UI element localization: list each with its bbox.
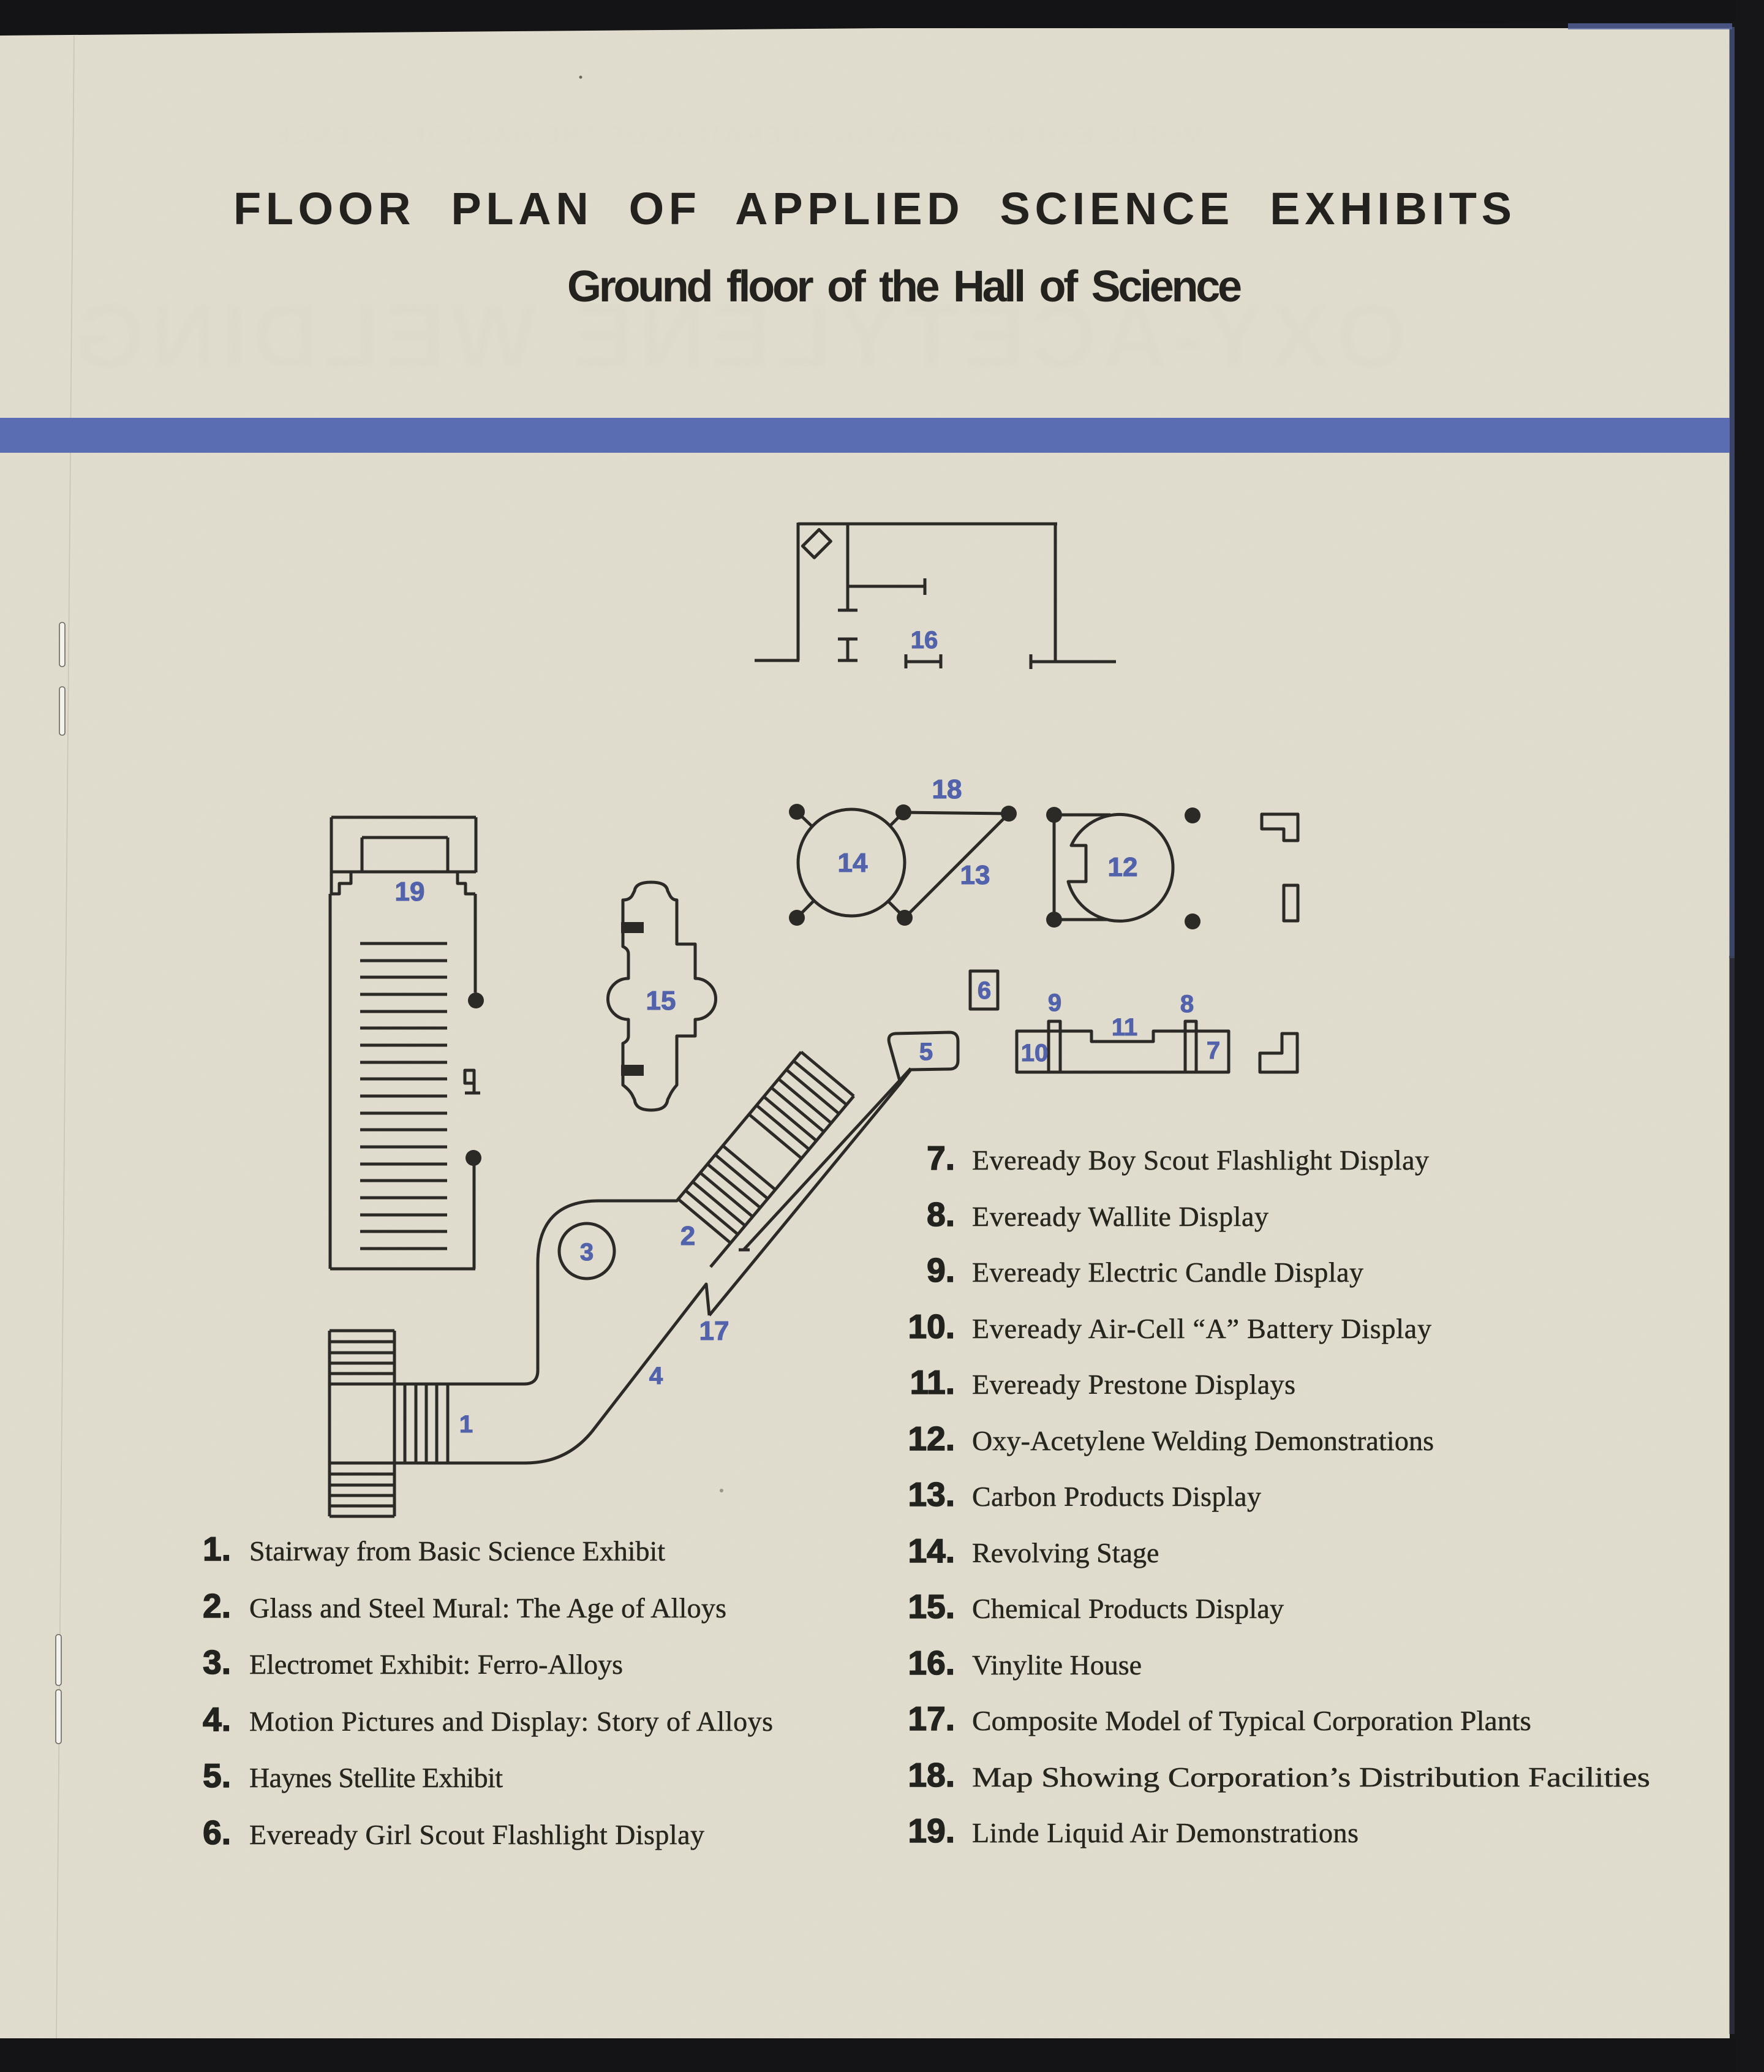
svg-text:MODEL EXHIBIT SHOWING OPERATIO: MODEL EXHIBIT SHOWING OPERATION OF THE H… <box>272 121 1204 149</box>
svg-text:9.: 9. <box>927 1251 955 1289</box>
svg-text:7: 7 <box>1207 1037 1220 1064</box>
svg-text:9: 9 <box>1048 989 1061 1016</box>
svg-text:6: 6 <box>978 977 991 1004</box>
svg-text:13: 13 <box>960 860 990 890</box>
svg-text:17: 17 <box>699 1316 729 1346</box>
svg-text:Revolving Stage: Revolving Stage <box>972 1537 1159 1568</box>
svg-text:11: 11 <box>1112 1014 1137 1041</box>
svg-text:1: 1 <box>459 1411 473 1438</box>
svg-text:7.: 7. <box>927 1139 955 1177</box>
svg-text:19: 19 <box>395 877 425 907</box>
svg-text:11.: 11. <box>910 1363 955 1401</box>
svg-text:12: 12 <box>1108 852 1138 882</box>
svg-text:Electromet Exhibit: Ferro-Allo: Electromet Exhibit: Ferro-Alloys <box>249 1649 623 1680</box>
svg-text:Map Showing Corporation’s Dist: Map Showing Corporation’s Distribution F… <box>972 1761 1650 1793</box>
svg-text:Chemical Products Display: Chemical Products Display <box>972 1593 1284 1624</box>
svg-text:18: 18 <box>932 774 962 804</box>
svg-text:8: 8 <box>1180 991 1194 1018</box>
svg-text:19.: 19. <box>908 1812 955 1850</box>
svg-text:10.: 10. <box>908 1307 955 1345</box>
svg-text:Haynes Stellite Exhibit: Haynes Stellite Exhibit <box>249 1762 503 1793</box>
svg-text:5: 5 <box>919 1038 933 1065</box>
svg-text:Eveready Boy Scout Flashlight: Eveready Boy Scout Flashlight Display <box>972 1144 1429 1176</box>
svg-text:16: 16 <box>911 627 938 654</box>
svg-text:Composite Model of Typical Cor: Composite Model of Typical Corporation P… <box>972 1705 1531 1736</box>
svg-text:16.: 16. <box>908 1644 955 1682</box>
svg-text:Eveready Prestone Displays: Eveready Prestone Displays <box>972 1369 1295 1400</box>
svg-text:15: 15 <box>646 986 676 1016</box>
svg-text:4.: 4. <box>203 1700 231 1738</box>
svg-text:2.: 2. <box>203 1587 231 1625</box>
svg-text:17.: 17. <box>908 1700 955 1737</box>
svg-text:3.: 3. <box>203 1643 231 1681</box>
svg-text:15.: 15. <box>908 1587 955 1625</box>
svg-text:Vinylite House: Vinylite House <box>972 1649 1142 1681</box>
svg-text:13.: 13. <box>908 1475 955 1513</box>
svg-text:Oxy-Acetylene Welding Demonstr: Oxy-Acetylene Welding Demonstrations <box>972 1425 1434 1456</box>
svg-text:18.: 18. <box>908 1756 955 1794</box>
svg-text:10: 10 <box>1021 1040 1049 1067</box>
svg-text:Eveready Air-Cell “A” Battery: Eveready Air-Cell “A” Battery Display <box>972 1313 1431 1344</box>
svg-text:Stairway from Basic Science Ex: Stairway from Basic Science Exhibit <box>249 1535 665 1567</box>
svg-text:8.: 8. <box>927 1195 955 1233</box>
svg-text:Eveready Girl Scout Flashlight: Eveready Girl Scout Flashlight Display <box>249 1819 704 1850</box>
svg-text:1.: 1. <box>203 1530 231 1568</box>
svg-text:Ground floor of the Hall of Sc: Ground floor of the Hall of Science <box>567 262 1242 311</box>
svg-text:14: 14 <box>838 848 868 878</box>
svg-text:12.: 12. <box>908 1420 955 1458</box>
svg-text:Motion Pictures and Display: S: Motion Pictures and Display: Story of Al… <box>249 1706 773 1737</box>
svg-text:Eveready Electric Candle Displ: Eveready Electric Candle Display <box>972 1257 1363 1288</box>
svg-text:Carbon Products Display: Carbon Products Display <box>972 1481 1261 1512</box>
svg-text:Linde Liquid Air Demonstration: Linde Liquid Air Demonstrations <box>972 1817 1359 1848</box>
svg-text:2: 2 <box>680 1221 695 1251</box>
svg-text:Eveready Wallite Display: Eveready Wallite Display <box>972 1201 1268 1232</box>
svg-text:3: 3 <box>580 1239 594 1266</box>
svg-text:6.: 6. <box>203 1813 231 1851</box>
svg-text:Glass and Steel Mural: The Age: Glass and Steel Mural: The Age of Alloys <box>249 1592 726 1624</box>
svg-text:14.: 14. <box>908 1532 955 1570</box>
svg-text:5.: 5. <box>203 1756 231 1794</box>
svg-text:4: 4 <box>649 1363 663 1390</box>
